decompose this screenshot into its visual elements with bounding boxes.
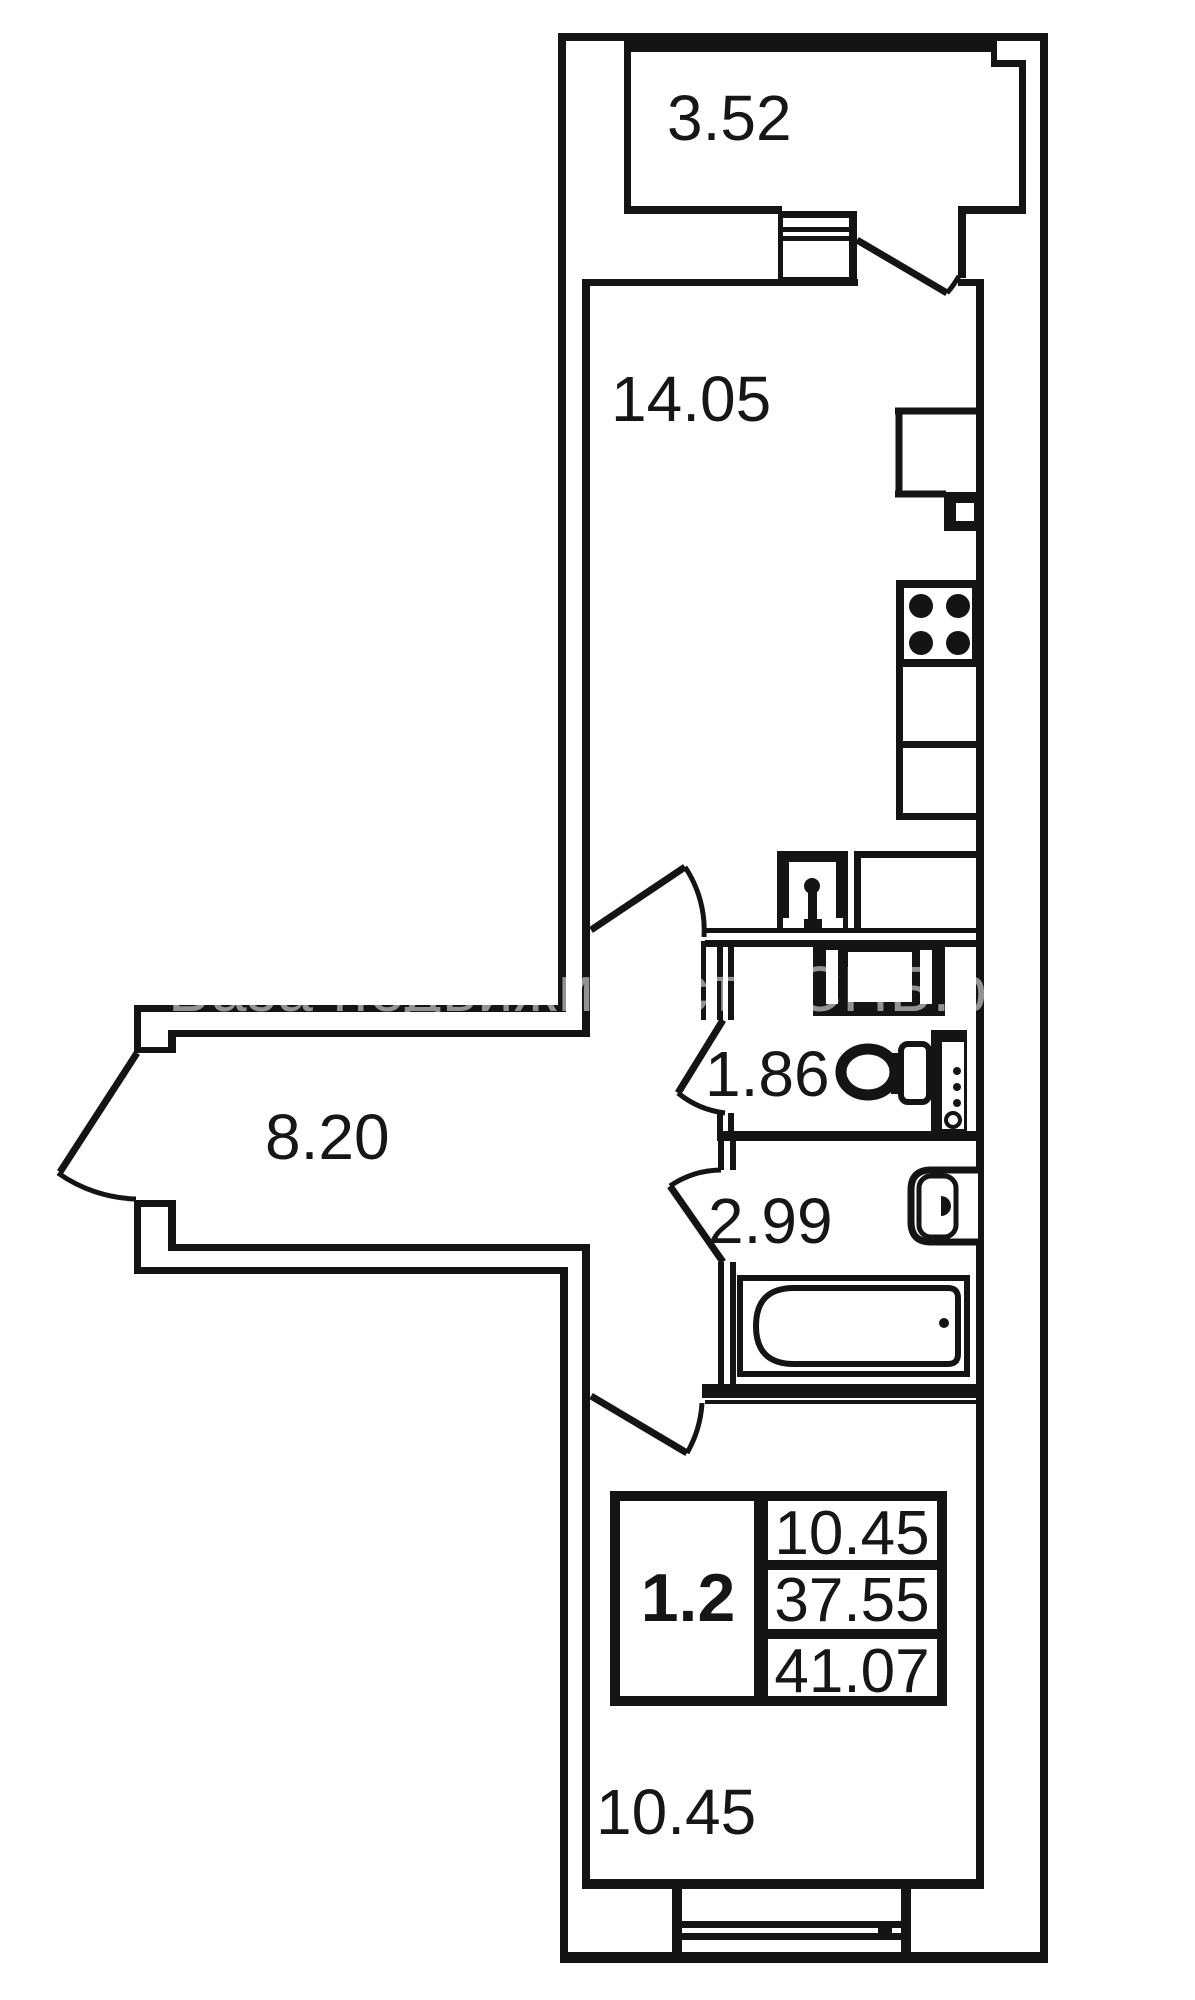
svg-text:14.05: 14.05 (611, 363, 771, 435)
svg-text:10.45: 10.45 (596, 1776, 756, 1848)
svg-text:1.86: 1.86 (705, 1038, 830, 1110)
svg-text:1.2: 1.2 (641, 1560, 736, 1636)
svg-text:8.20: 8.20 (265, 1101, 390, 1173)
svg-text:41.07: 41.07 (774, 1637, 929, 1706)
svg-text:10.45: 10.45 (774, 1499, 929, 1568)
svg-text:37.55: 37.55 (774, 1566, 929, 1635)
svg-text:2.99: 2.99 (708, 1185, 833, 1257)
svg-text:3.52: 3.52 (667, 82, 792, 154)
